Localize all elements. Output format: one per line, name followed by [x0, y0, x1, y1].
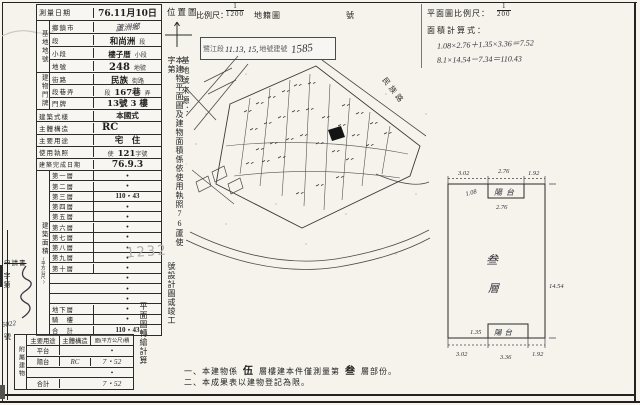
floor-row: •	[50, 284, 161, 294]
scale-fraction: 1 1200	[226, 3, 244, 18]
annex-area: •	[91, 346, 133, 355]
dim-right: 14.54	[549, 283, 564, 290]
floorplan-sketch: 3.02 2.76 1.92 1.08 陽台 2.76 14.54 叁 層 1.…	[438, 168, 634, 394]
style-value: 本國式	[94, 110, 161, 121]
license-prefix: 使	[108, 152, 114, 158]
door-value: 13號 3 樓	[94, 98, 161, 110]
township-value: 蘆洲鄉	[94, 21, 161, 34]
floor-row: •	[50, 274, 161, 284]
north-cross-icon	[160, 18, 196, 50]
dim-bottom-mid: 3.36	[499, 354, 512, 361]
subsection-row: 小段 樓子厝 小段	[50, 47, 161, 60]
area-calc-label: 面積計算式：	[427, 25, 487, 36]
floor-value: •	[94, 305, 161, 313]
sheet-no-label: 號	[346, 10, 354, 21]
case-zidi-label: 字第	[3, 272, 10, 290]
annex-area: 7・52	[91, 378, 133, 389]
annex-row: •	[27, 368, 133, 378]
stamp-mid: 地號建號	[259, 44, 287, 54]
floorplan-dim-ticks	[448, 176, 556, 348]
border-top	[2, 2, 637, 3]
map-subject-parcel	[328, 126, 345, 141]
street-suffix: 街路	[132, 79, 144, 85]
floor-value: •	[94, 274, 161, 282]
section-suffix: 段	[139, 40, 145, 46]
annex-use: 陽台	[27, 357, 60, 366]
balcony-bottom-label: 陽台	[494, 328, 515, 337]
note1-part-a: 一、本建物係	[184, 367, 238, 376]
plan-scale-fraction: 1 200	[497, 3, 511, 18]
license-suffix: 字號	[135, 152, 147, 158]
floor-row: 第十層 •	[50, 263, 161, 273]
license-label: 使用執照	[37, 147, 94, 157]
annex-group-label: 附屬建物	[15, 335, 27, 389]
stamp-prefix: 鷺江段	[203, 44, 224, 54]
lane-label: 段巷弄	[50, 86, 94, 96]
handwritten-signature-scribble	[12, 262, 38, 324]
use-value: 宅 住	[94, 135, 161, 147]
floor-row: 第三層 110・43	[50, 192, 161, 202]
license-no: 121	[118, 149, 136, 159]
annex-structure: RC	[60, 358, 91, 366]
dim-top-mid: 2.76	[498, 168, 510, 175]
case-hao-label: 號	[4, 332, 11, 342]
structure-label: 主體構造	[37, 123, 94, 133]
section-label: 段	[50, 35, 94, 45]
street-value: 民族	[111, 76, 128, 86]
site-group-label: 基地地號	[37, 21, 50, 73]
calc-line-1: 1.08×2.76＋1.35×3.36＝7.52	[437, 37, 534, 51]
scale-label: 比例尺：	[196, 10, 228, 21]
street-label: 街路	[50, 74, 94, 84]
floor-row: 第六層 •	[50, 222, 161, 232]
floor-row: 第五層 •	[50, 212, 161, 222]
street-row: 街路 民族 街路	[50, 73, 161, 85]
calc-line-2: 8.1×14.54－7.34＝110.43	[437, 53, 522, 65]
plan-scale-denominator: 200	[497, 11, 511, 18]
floorplan-dims: 3.02 2.76 1.92 1.08 陽台 2.76 14.54 叁 層 1.…	[455, 168, 564, 361]
floor-value: •	[94, 295, 161, 303]
lane-suffix: 弄	[145, 91, 151, 97]
map-speckles	[186, 74, 427, 255]
structure-row: 主體構造 RC	[37, 122, 161, 134]
style-label: 建築式樣	[37, 111, 94, 121]
annex-area: 7・52	[91, 356, 133, 367]
completion-row: 建築完成日期 76.9.3	[37, 159, 161, 171]
floor-label: 第六層	[50, 223, 94, 232]
floor-label: 第十層	[50, 264, 94, 273]
floor-label: 地下層	[50, 305, 94, 314]
floor-value: •	[94, 233, 161, 241]
lane-value: 167巷	[114, 88, 140, 98]
section-value: 和尚洲	[110, 37, 136, 47]
plan-scale-label: 平面圖比例尺：	[427, 8, 490, 19]
annex-row: 陽台 RC 7・52	[27, 357, 133, 368]
annex-header-row: 主要用途 主體構造 面(平方公尺)積	[27, 335, 133, 346]
floor-value: •	[94, 285, 161, 293]
note-line-1: 一、本建物係伍層樓建本件僅測量第叁層部份。	[184, 362, 397, 377]
address-group: 建物門牌 街路 民族 街路 段巷弄 段 167巷 弄 門牌 13號 3 樓	[37, 73, 161, 110]
survey-date-label: 測量日期	[37, 8, 94, 18]
floor-row: 第四層 •	[50, 202, 161, 212]
floor-row: 第一層 •	[50, 171, 161, 181]
door-label: 門牌	[50, 98, 94, 108]
floor-value: •	[94, 213, 161, 221]
floor-label: 第九層	[50, 253, 94, 262]
annex-use: 平台	[27, 346, 60, 355]
cadastral-map-label: 地籍圖	[254, 10, 281, 21]
subsection-suffix: 小段	[135, 53, 147, 59]
subsection-label: 小段	[50, 48, 94, 58]
border-right	[634, 2, 636, 402]
section-row: 段 和尚洲 段	[50, 34, 161, 47]
vertical-sentence-1: 本建物平面圖及建物面積係依使用執照76蘆使字第	[167, 56, 183, 252]
lot-value: 248	[109, 62, 130, 73]
note1-part-c: 層樓建本件僅測量第	[259, 367, 340, 376]
border-left-inner	[7, 230, 8, 400]
door-row: 門牌 13號 3 樓	[50, 98, 161, 110]
use-label: 主要用途	[37, 135, 94, 145]
floor-value: •	[94, 182, 161, 190]
site-lot-group: 基地地號 鄉鎮市 蘆洲鄉 段 和尚洲 段 小段 樓子厝 小段 地號 248 地號	[37, 21, 161, 73]
subsection-value: 樓子厝	[108, 50, 131, 59]
floor-label: 騎 樓	[50, 315, 94, 324]
floor-label: 第二層	[50, 182, 94, 191]
completion-label: 建築完成日期	[37, 160, 94, 169]
style-row: 建築式樣 本國式	[37, 110, 161, 122]
map-parcel-lines	[226, 74, 408, 210]
township-label: 鄉鎮市	[50, 22, 94, 32]
township-row: 鄉鎮市 蘆洲鄉	[50, 21, 161, 34]
floor-label: 第三層	[50, 192, 94, 201]
dim-balcony-top-depth: 1.08	[465, 188, 478, 198]
completion-value: 76.9.3	[94, 160, 161, 170]
annex-row: 平台 •	[27, 346, 133, 356]
annex-header-area: 面(平方公尺)積	[91, 337, 133, 344]
stamp-handwritten-parcels: 11.13, 15,	[225, 44, 258, 54]
license-stamp-number: 1232	[125, 243, 168, 262]
floor-label: 第五層	[50, 212, 94, 221]
floor-label: 第四層	[50, 202, 94, 211]
survey-date-value: 76.11月10日	[94, 6, 161, 19]
floor-label: 第七層	[50, 233, 94, 242]
annex-row: 合計 7・52	[27, 378, 133, 389]
floor-label-char1: 叁	[486, 253, 499, 267]
floor-row: 第七層 •	[50, 233, 161, 243]
border-bottom-outer	[0, 401, 640, 403]
edge-mark-1	[0, 265, 3, 287]
dim-bottom-left: 3.02	[455, 351, 468, 358]
lot-row: 地號 248 地號	[50, 60, 161, 73]
annex-header-use: 主要用途	[27, 336, 60, 345]
address-group-label: 建物門牌	[37, 73, 50, 110]
structure-value: RC	[94, 122, 161, 133]
building-survey-form: 測量日期 76.11月10日 基地地號 鄉鎮市 蘆洲鄉 段 和尚洲 段 小段 樓…	[36, 4, 162, 336]
vertical-sentence-3: 平面圖轉繪計算	[139, 302, 147, 372]
dim-balcony-bottom-depth: 1.35	[470, 329, 482, 336]
note1-floors-total: 伍	[243, 366, 254, 377]
lane-row: 段巷弄 段 167巷 弄	[50, 85, 161, 97]
floor-value: •	[94, 203, 161, 211]
floor-value: •	[94, 172, 161, 180]
note-line-2: 二、本成果表以建物登記為限。	[184, 377, 310, 388]
survey-document-page: 測量日期 76.11月10日 基地地號 鄉鎮市 蘆洲鄉 段 和尚洲 段 小段 樓…	[0, 0, 640, 405]
annex-area: •	[91, 368, 133, 377]
floor-value: •	[94, 264, 161, 272]
case-number: 6022	[2, 319, 17, 329]
floor-value: •	[94, 223, 161, 231]
note1-floor-measured: 叁	[345, 366, 356, 377]
use-row: 主要用途 宅 住	[37, 135, 161, 147]
floor-value: 110・43	[94, 191, 161, 201]
survey-date-row: 測量日期 76.11月10日	[37, 5, 161, 21]
dim-balcony-top-width: 2.76	[496, 204, 508, 211]
dim-top-right: 1.92	[528, 170, 540, 177]
location-map-title: 位置圖	[167, 6, 199, 18]
edge-mark-2	[0, 385, 5, 399]
lane-prefix: 段	[104, 91, 110, 97]
lot-suffix: 地號	[134, 66, 146, 72]
floor-label: 第八層	[50, 243, 94, 252]
balcony-top-label: 陽台	[494, 188, 518, 197]
license-row: 使用執照 使 121字號	[37, 147, 161, 159]
area-group-label: 建築面積(平方公尺)	[37, 171, 50, 335]
dim-bottom-right: 1.92	[532, 351, 544, 358]
map-street-label: 民族路	[380, 75, 407, 106]
map-parcel-numbers	[244, 82, 392, 194]
floor-value: •	[94, 315, 161, 323]
cadastral-map: 民族路	[186, 54, 432, 296]
floor-label-char2: 層	[488, 283, 500, 295]
dim-top-left: 3.02	[457, 170, 470, 177]
note1-part-e: 層部份。	[361, 367, 397, 376]
border-bottom-inner	[2, 394, 636, 396]
scale-denominator: 1200	[226, 11, 244, 18]
floor-label: 第一層	[50, 171, 94, 180]
vertical-sentence-2: 號設計圖或竣工	[167, 262, 175, 332]
lot-label: 地號	[50, 61, 94, 71]
annex-building-table: 附屬建物 主要用途 主體構造 面(平方公尺)積 平台 • 陽台 RC 7・52 …	[14, 334, 134, 390]
annex-use: 合計	[27, 379, 60, 388]
annex-header-structure: 主體構造	[60, 336, 91, 345]
floor-row: 第二層 •	[50, 181, 161, 191]
border-left-outer	[2, 2, 3, 402]
